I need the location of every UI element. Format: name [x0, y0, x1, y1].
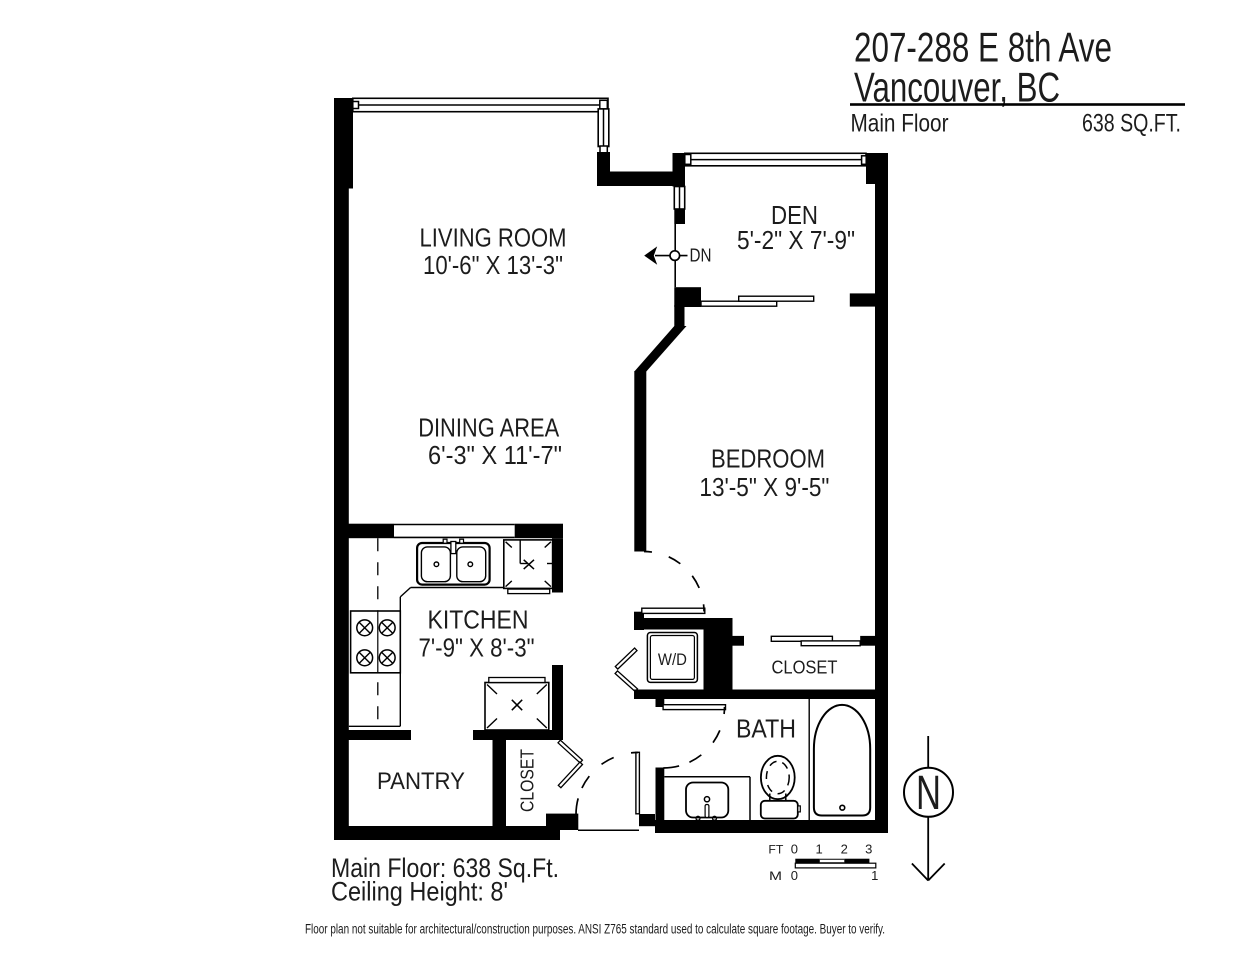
svg-text:1: 1: [871, 868, 878, 883]
svg-text:DEN: DEN: [771, 202, 818, 230]
svg-text:5'-2" X 7'-9": 5'-2" X 7'-9": [737, 227, 855, 255]
svg-text:Ceiling Height: 8': Ceiling Height: 8': [331, 876, 508, 906]
svg-text:M: M: [769, 869, 782, 883]
svg-text:0: 0: [791, 842, 798, 857]
svg-text:Main Floor: Main Floor: [851, 110, 949, 138]
svg-text:638 SQ.FT.: 638 SQ.FT.: [1082, 110, 1181, 138]
svg-text:CLOSET: CLOSET: [517, 749, 538, 812]
svg-text:10'-6" X 13'-3": 10'-6" X 13'-3": [423, 252, 563, 280]
svg-text:0: 0: [791, 868, 798, 883]
svg-text:DN: DN: [690, 246, 712, 266]
svg-text:N: N: [916, 767, 941, 820]
svg-text:3: 3: [865, 842, 872, 857]
svg-text:KITCHEN: KITCHEN: [428, 606, 529, 634]
svg-text:BEDROOM: BEDROOM: [711, 446, 825, 474]
svg-text:CLOSET: CLOSET: [772, 657, 838, 678]
svg-text:W/D: W/D: [658, 651, 687, 669]
svg-text:Floor plan not suitable for ar: Floor plan not suitable for architectura…: [305, 922, 885, 937]
svg-text:DINING AREA: DINING AREA: [418, 415, 560, 443]
svg-text:1: 1: [815, 842, 822, 857]
svg-text:7'-9" X 8'-3": 7'-9" X 8'-3": [419, 635, 535, 663]
svg-text:LIVING ROOM: LIVING ROOM: [420, 225, 567, 253]
svg-text:6'-3" X 11'-7": 6'-3" X 11'-7": [428, 442, 562, 470]
svg-text:PANTRY: PANTRY: [377, 768, 465, 795]
svg-text:FT: FT: [768, 842, 784, 856]
svg-text:2: 2: [841, 842, 848, 857]
svg-text:13'-5" X 9'-5": 13'-5" X 9'-5": [699, 474, 829, 502]
svg-text:BATH: BATH: [736, 716, 796, 744]
